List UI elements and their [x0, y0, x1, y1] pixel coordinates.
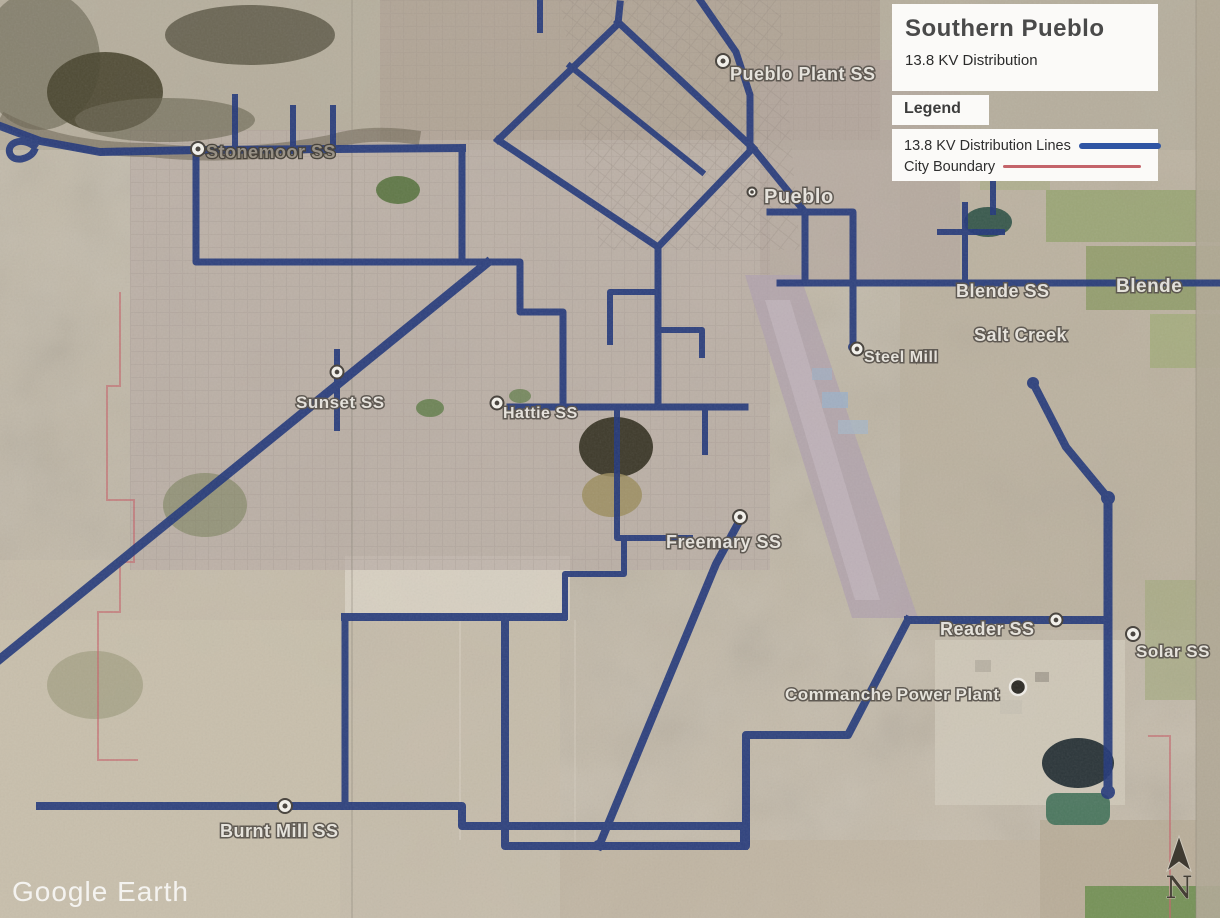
legend: 13.8 KV Distribution Lines City Boundary	[892, 129, 1158, 181]
legend-item-city-boundary: City Boundary	[904, 156, 1146, 177]
map-subtitle: 13.8 KV Distribution	[905, 52, 1145, 69]
google-earth-watermark: Google Earth	[12, 876, 189, 907]
scanned-map-page: Pueblo Plant SSStonemoor SSPuebloBlende …	[0, 0, 1220, 918]
legend-label-distribution-lines: 13.8 KV Distribution Lines	[904, 138, 1071, 154]
map-title-block: Southern Pueblo 13.8 KV Distribution	[892, 4, 1158, 91]
north-label: N	[1165, 870, 1192, 906]
map-title: Southern Pueblo	[905, 15, 1145, 43]
distribution-line-swatch	[1079, 143, 1161, 149]
city-boundary-swatch	[1003, 165, 1141, 168]
legend-item-distribution-lines: 13.8 KV Distribution Lines	[904, 135, 1146, 156]
legend-label-city-boundary: City Boundary	[904, 159, 995, 175]
legend-heading: Legend	[892, 95, 989, 125]
